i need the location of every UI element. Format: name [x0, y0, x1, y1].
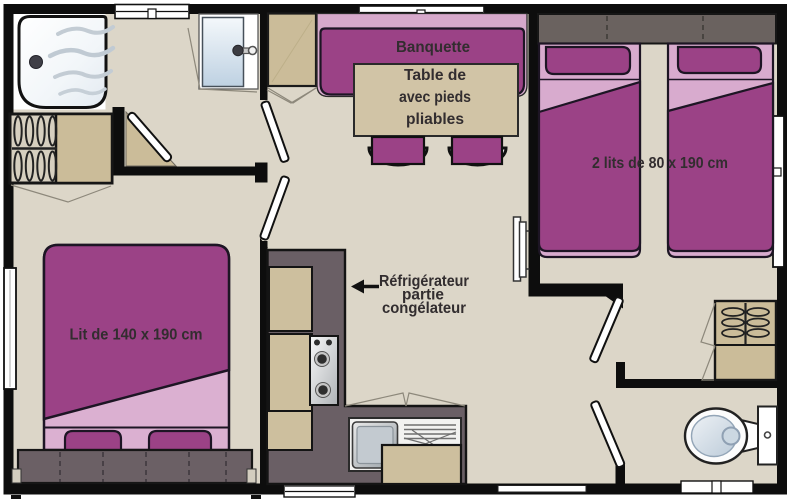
- svg-text:Banquette: Banquette: [396, 39, 470, 56]
- svg-text:2 lits de 80 x 190 cm: 2 lits de 80 x 190 cm: [592, 155, 728, 172]
- svg-text:Table de: Table de: [404, 67, 466, 84]
- svg-text:congélateur: congélateur: [382, 300, 466, 317]
- svg-text:pliables: pliables: [406, 111, 464, 128]
- svg-text:Lit de 140 x 190 cm: Lit de 140 x 190 cm: [70, 327, 203, 344]
- svg-text:avec pieds: avec pieds: [399, 89, 471, 106]
